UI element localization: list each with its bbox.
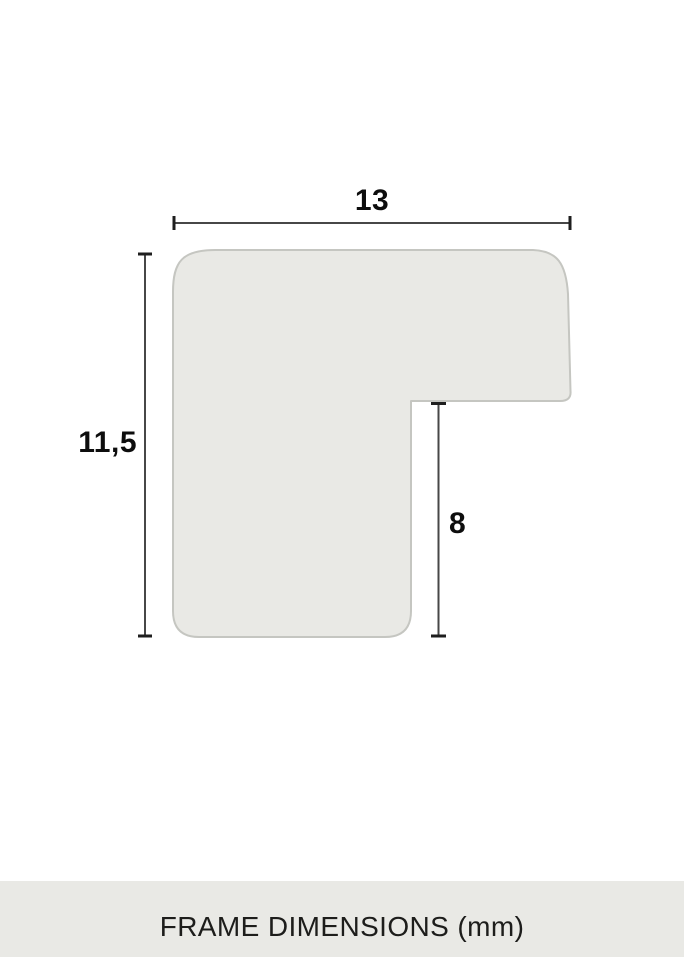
dimension-height-label: 11,5: [30, 428, 137, 458]
frame-dimensions-page: 13 11,5 8 FRAME DIMENSIONS (mm): [0, 0, 684, 957]
caption-text: FRAME DIMENSIONS (mm): [160, 913, 525, 941]
dimension-height-line: [138, 253, 152, 637]
frame-profile-cross-section: [173, 250, 571, 637]
dimension-rabbet-depth-label: 8: [449, 509, 529, 539]
frame-profile-diagram-svg: [0, 0, 684, 957]
dimension-rabbet-line: [431, 403, 446, 637]
caption-band: FRAME DIMENSIONS (mm): [0, 881, 684, 957]
dimension-width-label: 13: [173, 186, 571, 216]
dimension-width-line: [173, 216, 571, 230]
